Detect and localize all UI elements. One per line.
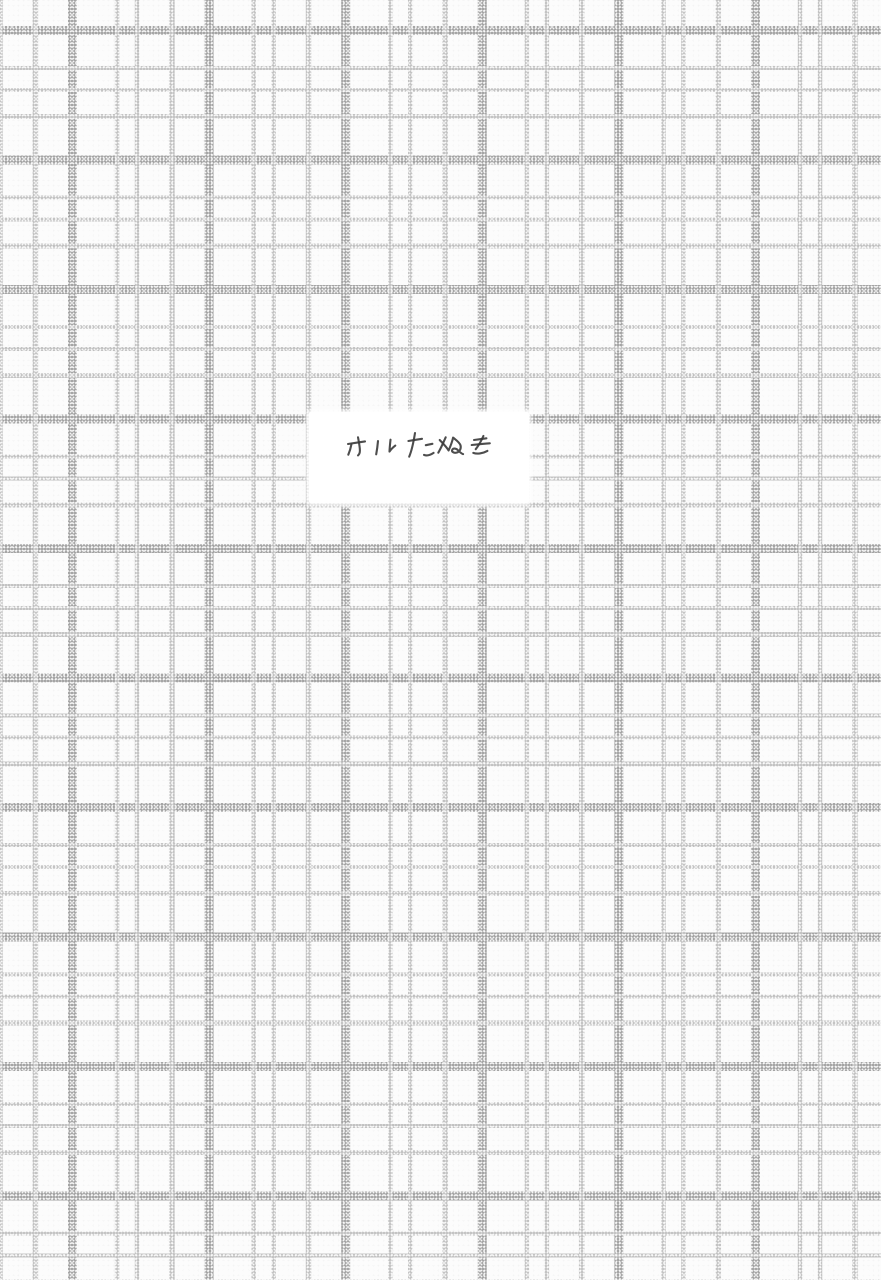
plaid-pattern-background [0, 0, 881, 1280]
scanned-page: カルたぬき [0, 0, 881, 1280]
glyph-nu [438, 437, 463, 454]
glyph-ru [376, 440, 395, 455]
glyph-ta [408, 433, 433, 457]
title-text-glyphs [309, 412, 529, 503]
title-label: カルたぬき [309, 412, 529, 503]
glyph-ki [472, 436, 490, 454]
glyph-ka [348, 437, 365, 455]
